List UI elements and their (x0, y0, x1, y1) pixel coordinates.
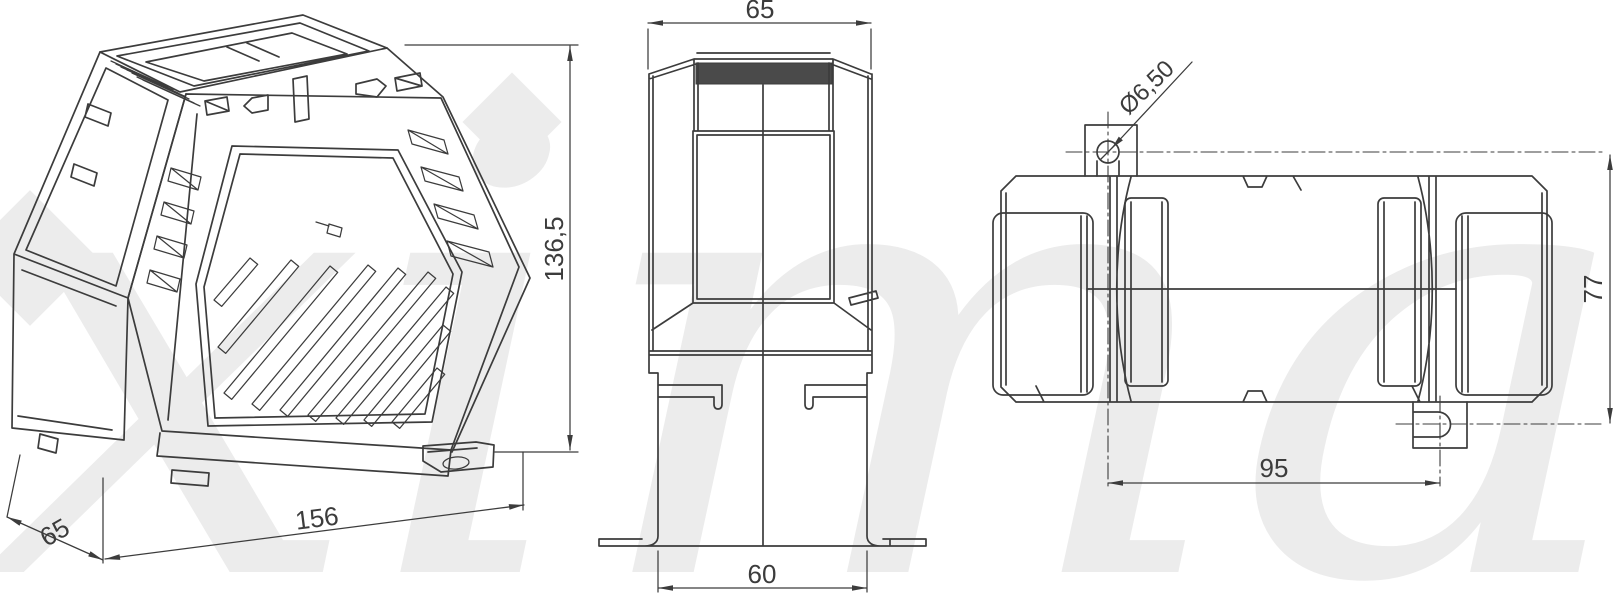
watermark: xima (0, 2, 1623, 602)
dim-hole-spacing-label: 95 (1260, 453, 1289, 483)
front-gasket-strip (696, 63, 832, 84)
dim-top-width77-label: 77 (1578, 275, 1608, 304)
dim-width-label: 156 (293, 500, 340, 535)
watermark-text: xima (0, 2, 1623, 602)
technical-drawing: xima 136,5 (0, 0, 1623, 602)
dim-bottom-width-label: 60 (748, 559, 777, 589)
drawing-page: xima 136,5 (0, 0, 1623, 602)
dim-height-label: 136,5 (539, 216, 569, 281)
dim-top-width-label: 65 (746, 0, 775, 24)
